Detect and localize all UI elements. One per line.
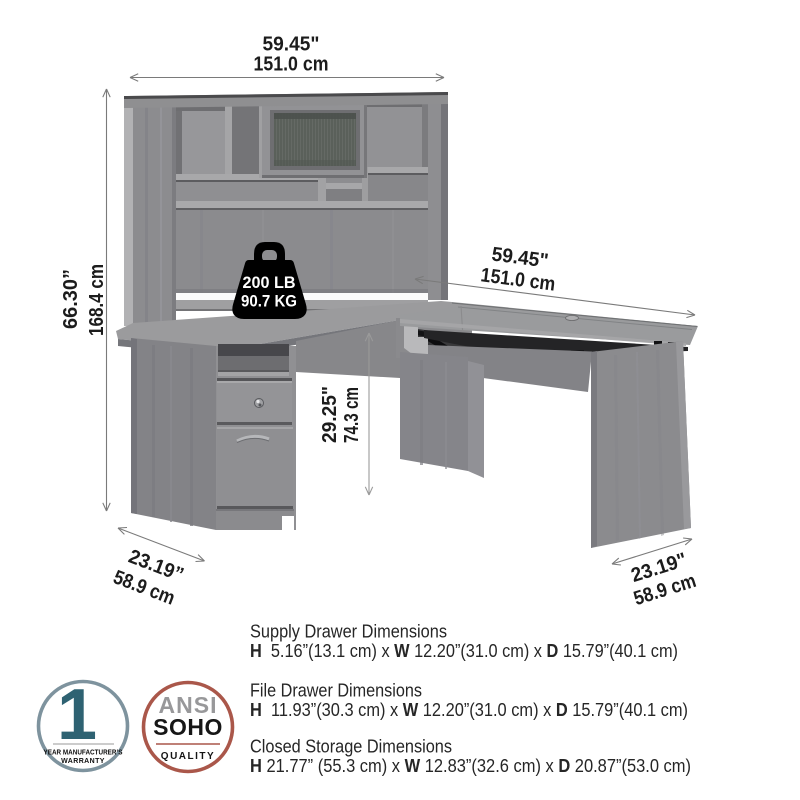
svg-text:SOHO: SOHO bbox=[153, 714, 223, 740]
svg-text:WARRANTY: WARRANTY bbox=[61, 758, 105, 765]
svg-text:H 5.16”(13.1 cm) x W 12.20”(3: H 5.16”(13.1 cm) x W 12.20”(31.0 cm) x D… bbox=[250, 640, 678, 661]
svg-text:H 21.77” (55.3 cm) x W 12.83”: H 21.77” (55.3 cm) x W 12.83”(32.6 cm) x… bbox=[250, 755, 691, 776]
svg-text:YEAR MANUFACTURER’S: YEAR MANUFACTURER’S bbox=[44, 750, 123, 757]
svg-text:H 11.93”(30.3 cm) x W 12.20”(: H 11.93”(30.3 cm) x W 12.20”(31.0 cm) x … bbox=[250, 699, 688, 720]
svg-text:59.45": 59.45" bbox=[263, 34, 320, 56]
svg-text:QUALITY: QUALITY bbox=[161, 751, 215, 762]
svg-text:Closed Storage Dimensions: Closed Storage Dimensions bbox=[250, 736, 452, 757]
svg-text:151.0 cm: 151.0 cm bbox=[254, 54, 329, 76]
svg-text:74.3 cm: 74.3 cm bbox=[341, 387, 363, 443]
svg-text:Supply Drawer Dimensions: Supply Drawer Dimensions bbox=[250, 621, 447, 642]
svg-text:66.30”: 66.30” bbox=[60, 269, 82, 329]
svg-text:90.7 KG: 90.7 KG bbox=[241, 293, 297, 311]
svg-text:168.4 cm: 168.4 cm bbox=[86, 264, 108, 336]
svg-text:File Drawer Dimensions: File Drawer Dimensions bbox=[250, 679, 422, 700]
svg-text:200 LB: 200 LB bbox=[243, 274, 296, 292]
svg-text:29.25": 29.25" bbox=[319, 386, 341, 443]
svg-text:1: 1 bbox=[57, 675, 97, 755]
